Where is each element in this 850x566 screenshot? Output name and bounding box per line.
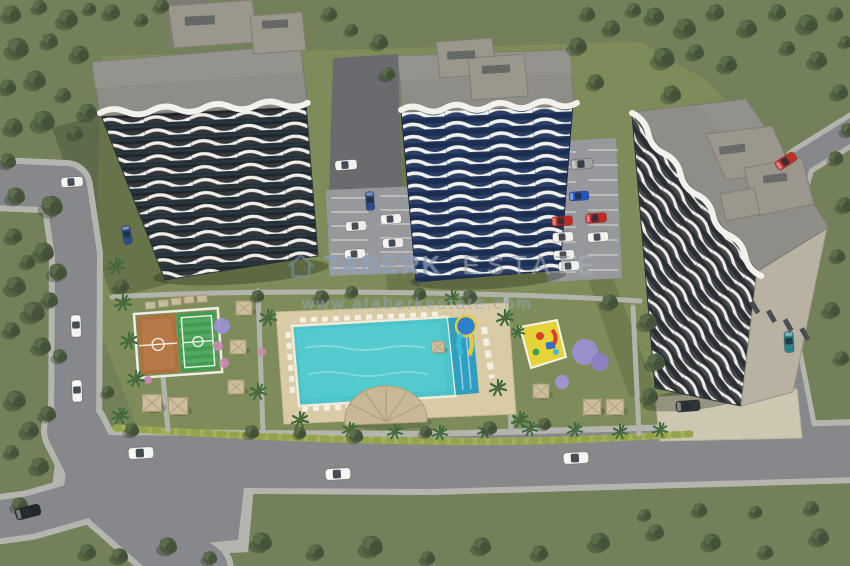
- flowering-tree: [214, 318, 230, 334]
- flowering-tree: [219, 358, 229, 368]
- car-glass: [136, 448, 144, 457]
- car: [71, 315, 82, 337]
- car: [563, 452, 589, 465]
- car-glass: [564, 262, 571, 270]
- car-glass: [575, 192, 582, 199]
- car-hood: [554, 252, 558, 260]
- car-glass: [333, 469, 341, 478]
- car-glass: [67, 178, 75, 186]
- car-hood: [588, 234, 592, 242]
- car: [345, 221, 367, 232]
- car: [344, 249, 366, 260]
- car-hood: [345, 251, 349, 259]
- car: [382, 238, 404, 249]
- flowering-tree: [555, 375, 569, 389]
- car-hood: [570, 193, 574, 200]
- car-glass: [559, 251, 566, 259]
- car-glass: [73, 386, 81, 393]
- car-glass: [785, 338, 793, 345]
- residential-complex-render: [0, 0, 850, 566]
- car: [380, 214, 402, 225]
- car: [325, 468, 351, 481]
- car-glass: [351, 222, 358, 230]
- flowering-tree: [144, 376, 152, 384]
- car-glass: [367, 197, 374, 203]
- car-hood: [129, 449, 134, 458]
- car-hood: [785, 332, 793, 336]
- car: [552, 232, 574, 243]
- car-hood: [346, 223, 350, 231]
- center-tower-facade: [401, 103, 573, 282]
- car: [587, 232, 609, 243]
- car-hood: [366, 192, 373, 195]
- car: [784, 331, 795, 352]
- car: [676, 400, 701, 413]
- car: [569, 191, 589, 201]
- flowering-tree: [258, 348, 266, 356]
- car-hood: [73, 381, 81, 385]
- car-glass: [72, 321, 80, 328]
- flowering-tree: [591, 353, 609, 371]
- car-hood: [552, 218, 556, 226]
- car-hood: [381, 216, 385, 224]
- car-hood: [326, 470, 331, 479]
- car-hood: [62, 178, 66, 186]
- car-glass: [386, 215, 393, 223]
- car: [335, 159, 358, 171]
- car-hood: [572, 161, 576, 169]
- car-hood: [586, 215, 590, 223]
- center-tower: [398, 38, 577, 293]
- car: [365, 191, 375, 210]
- car-glass: [683, 402, 691, 411]
- car-hood: [72, 316, 80, 320]
- car-hood: [336, 161, 340, 169]
- car-hood: [559, 263, 563, 271]
- car-glass: [571, 453, 579, 462]
- car: [551, 216, 573, 227]
- car: [72, 380, 83, 402]
- car-glass: [123, 231, 130, 238]
- flowering-tree: [213, 341, 223, 351]
- car: [558, 261, 580, 272]
- car-glass: [557, 217, 564, 225]
- car-glass: [350, 250, 357, 258]
- car-glass: [593, 233, 600, 241]
- aerial-render-image: TABERK ESTATE www.ataberkestate.com: [0, 0, 850, 566]
- car: [553, 250, 575, 261]
- car-glass: [591, 214, 598, 222]
- car-hood: [383, 240, 387, 248]
- car-glass: [558, 233, 565, 241]
- car-glass: [388, 239, 395, 247]
- car-glass: [577, 160, 585, 168]
- car-hood: [553, 234, 557, 242]
- car: [571, 158, 594, 170]
- car-glass: [341, 161, 349, 169]
- car: [585, 213, 607, 224]
- car: [128, 447, 154, 460]
- car-hood: [564, 454, 569, 463]
- car: [61, 176, 84, 188]
- pool-area: [276, 303, 516, 430]
- car-hood: [677, 402, 681, 411]
